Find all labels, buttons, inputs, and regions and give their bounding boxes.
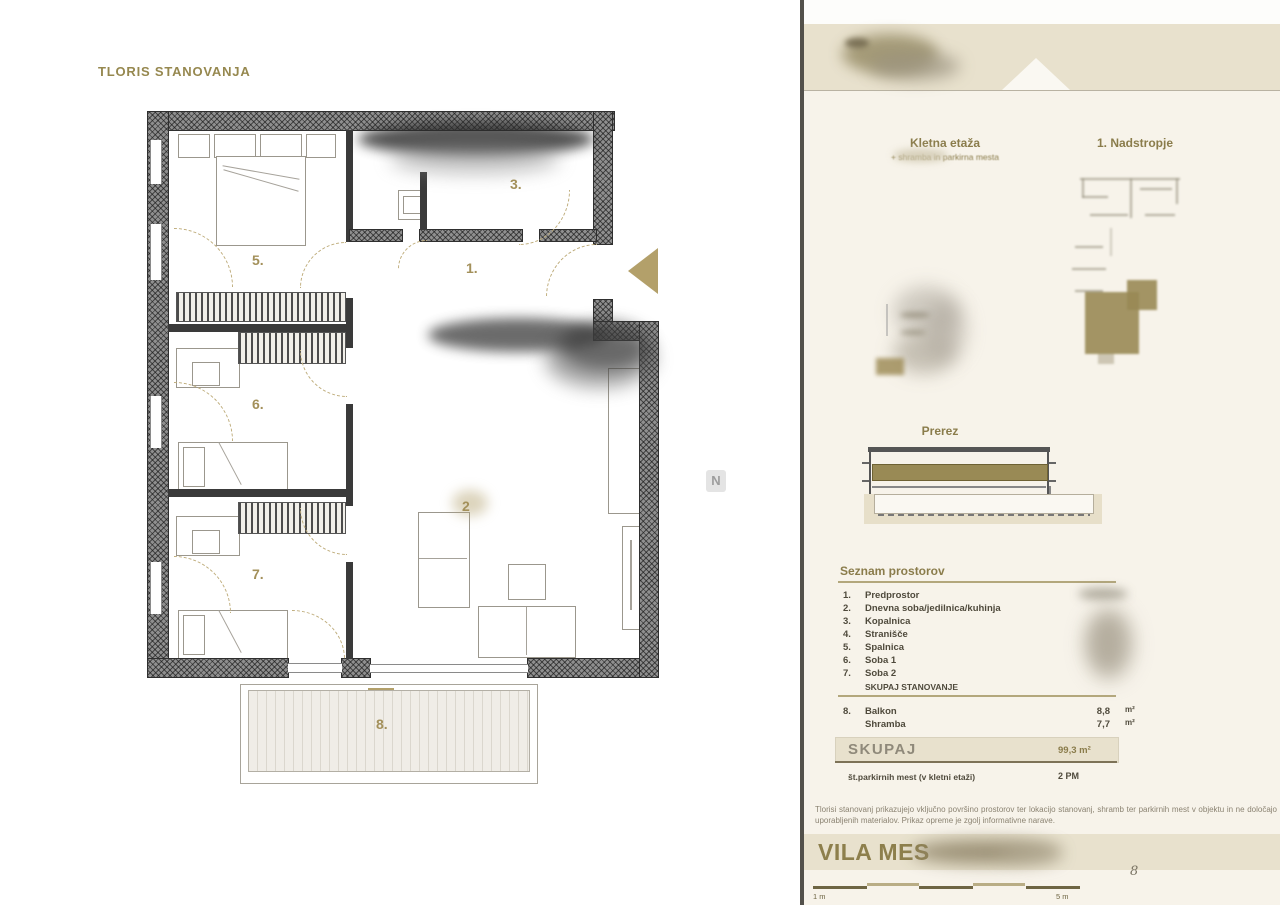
door-arc: [174, 556, 231, 613]
chair: [192, 530, 220, 554]
wall-right-upper: [594, 112, 612, 244]
wall-bottom: [528, 659, 658, 677]
room-num: 2.: [843, 603, 865, 614]
room-name: Soba 2: [865, 668, 896, 679]
wall-spine: [346, 562, 353, 659]
section-tick: [862, 480, 869, 482]
total-value: 99,3 m²: [1058, 745, 1091, 756]
censor-blur: [390, 146, 560, 174]
room-label-7: 7.: [252, 566, 264, 582]
extra-name: Shramba: [865, 719, 906, 730]
scale-bar-segment: [867, 883, 919, 886]
page-title: TLORIS STANOVANJA: [98, 64, 251, 79]
room-num: 4.: [843, 629, 865, 640]
door-arc: [300, 350, 347, 397]
room-label-6: 6.: [252, 396, 264, 412]
sidebar-top-strip: [804, 0, 1280, 24]
door-arc: [398, 240, 427, 269]
scale-bar-segment: [1026, 886, 1080, 889]
rule: [838, 695, 1116, 697]
window: [150, 140, 162, 184]
wall-spine: [346, 130, 353, 242]
parking-value: 2 PM: [1058, 771, 1079, 781]
room-name: Predprostor: [865, 590, 919, 601]
wall-bottom-post: [342, 659, 370, 677]
scale-label-right: 5 m: [1056, 892, 1069, 901]
logo-blur: [870, 52, 960, 80]
door-arc: [300, 242, 346, 288]
room-name: Stranišče: [865, 629, 908, 640]
room-name: Dnevna soba/jedilnica/kuhinja: [865, 603, 1001, 614]
wall-right-stub: [594, 300, 612, 324]
extra-unit: m²: [1125, 718, 1135, 727]
room-num: 6.: [843, 655, 865, 666]
shower-drain: [403, 196, 421, 214]
door-arc: [300, 508, 347, 555]
extra-value: 8,8: [1080, 706, 1110, 717]
page-number: 8: [1130, 864, 1138, 879]
double-bed: [216, 156, 306, 246]
door-arc: [292, 610, 345, 659]
room-num: 7.: [843, 668, 865, 679]
section-tick: [862, 462, 869, 464]
headboard-shelf: [306, 134, 336, 158]
scale-bar-segment: [813, 886, 867, 889]
section-floor-line: [872, 486, 1046, 488]
window: [150, 224, 162, 280]
window: [370, 664, 528, 673]
entrance-arrow-icon: [628, 248, 658, 294]
rooms-total-label: SKUPAJ STANOVANJE: [865, 682, 958, 692]
section-basement-room: [874, 494, 1094, 514]
sofa-cushion-line: [526, 607, 527, 655]
disclaimer-text: Tlorisi stanovanj prikazujejo vključno p…: [815, 804, 1277, 826]
room-label-8: 8.: [376, 716, 388, 732]
room-num: 5.: [843, 642, 865, 653]
wall-bath: [350, 230, 402, 241]
room-label-2: 2: [462, 498, 470, 514]
total-label: SKUPAJ: [848, 741, 917, 758]
basement-plan-blur: [900, 330, 926, 335]
room-num: 1.: [843, 590, 865, 601]
headboard-shelf: [214, 134, 256, 158]
wall-spine: [346, 298, 353, 348]
censor-blur: [452, 490, 488, 516]
wall-room6-7: [168, 489, 346, 497]
wardrobe: [176, 292, 346, 322]
rooms-title: Seznam prostorov: [840, 564, 1060, 578]
balcony-door-glass: [288, 663, 342, 673]
total-underline: [835, 761, 1117, 763]
wall-bath: [420, 230, 522, 241]
room-label-1: 1.: [466, 260, 478, 276]
section-title: Prerez: [870, 424, 1010, 438]
parking-label: št.parkirnih mest (v kletni etaži): [848, 772, 975, 782]
censor-blur: [893, 149, 948, 162]
basement-plan-blur: [925, 300, 965, 360]
section-wall: [869, 447, 871, 497]
wall-bottom: [148, 659, 288, 677]
room-label-5: 5.: [252, 252, 264, 268]
section-tick: [1049, 480, 1056, 482]
wall-spine: [346, 404, 353, 506]
chair: [192, 362, 220, 386]
floor-mini-plan: [1070, 172, 1190, 372]
brand-blur: [1000, 846, 1060, 862]
coffee-table: [508, 564, 546, 600]
extra-unit: m²: [1125, 705, 1135, 714]
window: [150, 396, 162, 448]
banner-peak: [1002, 58, 1070, 90]
pillow: [183, 447, 205, 487]
room-label-3: 3.: [510, 176, 522, 192]
headboard-shelf: [260, 134, 302, 158]
window: [150, 562, 162, 614]
tv-line: [630, 540, 632, 610]
sofa: [478, 606, 576, 658]
logo-blur: [845, 38, 869, 48]
wall-wc: [420, 172, 427, 230]
basement-title: Kletna etaža: [855, 136, 1035, 150]
room-num: 3.: [843, 616, 865, 627]
north-compass-icon: N: [706, 470, 726, 492]
rule: [838, 581, 1116, 583]
balcony-decking: [248, 690, 530, 772]
extra-value: 7,7: [1080, 719, 1110, 730]
room-name: Soba 1: [865, 655, 896, 666]
wall-room5-6: [168, 324, 346, 332]
sofa-cushion-line: [419, 558, 467, 559]
scale-bar-segment: [973, 883, 1025, 886]
floorplan-sheet: TLORIS STANOVANJA: [0, 0, 1280, 905]
section-tick: [1049, 462, 1056, 464]
pillow: [183, 615, 205, 655]
room-name: Kopalnica: [865, 616, 910, 627]
room-name: Spalnica: [865, 642, 904, 653]
basement-plan-blur: [900, 312, 930, 318]
extra-num: 8.: [843, 706, 865, 717]
scale-label-left: 1 m: [813, 892, 826, 901]
entry-door-arc: [546, 244, 597, 297]
tall-cabinet: [608, 368, 644, 514]
censor-blur: [1078, 588, 1128, 600]
floor-title: 1. Nadstropje: [1060, 136, 1210, 150]
headboard-shelf: [178, 134, 210, 158]
sofa: [418, 512, 470, 608]
censor-blur: [560, 322, 650, 370]
section-floor-highlight: [872, 464, 1048, 481]
section-roof: [868, 447, 1050, 452]
scale-bar-segment: [919, 886, 973, 889]
extra-name: Balkon: [865, 706, 897, 717]
basement-plan-line: [886, 304, 888, 336]
section-basement-dashes: [878, 514, 1090, 516]
door-arc: [174, 382, 233, 441]
censor-blur: [1090, 615, 1125, 670]
balcony-mark: [368, 688, 394, 690]
basement-highlight: [876, 358, 904, 375]
